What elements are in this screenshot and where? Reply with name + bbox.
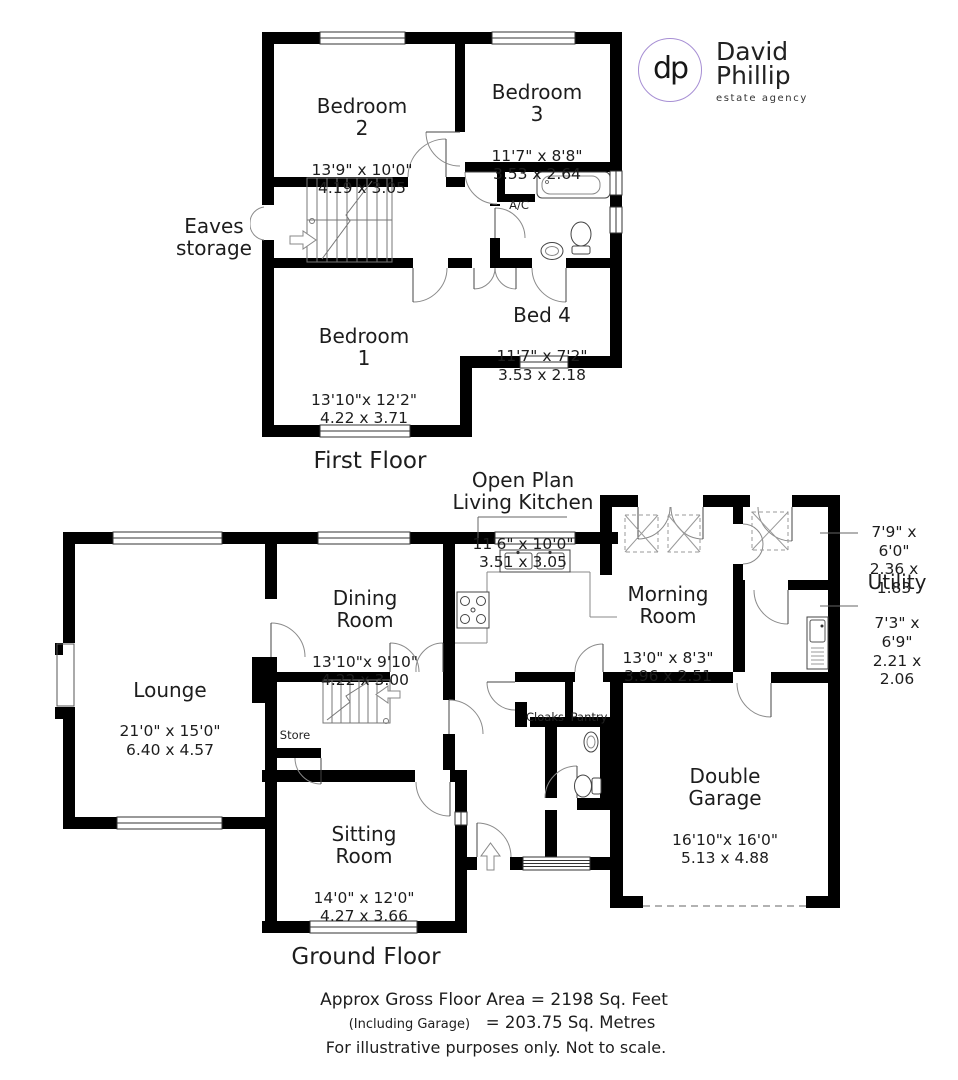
ground-floor-title: Ground Floor (291, 944, 440, 970)
room-cloaks: Cloaks (526, 692, 564, 743)
room-name: Bedroom 2 (312, 95, 413, 140)
room-dims: 11'7" x 8'8" 3.53 x 2.64 (491, 147, 582, 184)
room-dims: 13'10"x 12'2" 4.22 x 3.71 (311, 391, 417, 428)
logo-initials: dp (653, 51, 687, 89)
basin-icon (541, 243, 563, 260)
utility-sink-icon (807, 617, 828, 669)
first-floor-title: First Floor (314, 448, 427, 474)
room-name: Store (280, 729, 310, 742)
room-ac-cupboard: A/C (509, 180, 529, 231)
room-name: A/C (509, 199, 529, 212)
room-name: Open Plan Living Kitchen (453, 469, 594, 514)
room-name: Lounge (120, 679, 221, 701)
room-name: Dining Room (312, 587, 418, 632)
room-sitting: Sitting Room 14'0" x 12'0" 4.27 x 3.66 (314, 804, 415, 945)
room-name: Pantry (571, 711, 608, 724)
skylight-icons (625, 512, 788, 552)
room-pantry: Pantry (571, 692, 608, 743)
hob-icon (457, 592, 489, 628)
room-bed4: Bed 4 11'7" x 7'2" 3.53 x 2.18 (496, 285, 587, 404)
footer-area-feet: Approx Gross Floor Area = 2198 Sq. Feet (320, 990, 668, 1010)
room-bedroom2: Bedroom 2 13'9" x 10'0" 4.19 x 3.05 (312, 76, 413, 217)
room-dims: 11'6" x 10'0" 3.51 x 3.05 (453, 535, 594, 572)
room-open-plan-kitchen: Open Plan Living Kitchen 11'6" x 10'0" 3… (453, 450, 594, 591)
room-name: Eaves storage (176, 215, 252, 260)
room-eaves-storage: Eaves storage (176, 196, 252, 279)
room-dims: 7'3" x 6'9" 2.21 x 2.06 (867, 614, 928, 688)
room-name: Cloaks (526, 711, 564, 724)
logo-text: David Phillip estate agency (716, 38, 808, 104)
toilet-icon (571, 222, 591, 254)
room-bedroom1: Bedroom 1 13'10"x 12'2" 4.22 x 3.71 (311, 306, 417, 447)
floorplan-page: dp David Phillip estate agency (0, 0, 958, 1080)
room-dims: 13'0" x 8'3" 3.96 x 2.51 (622, 649, 713, 686)
room-name: Bedroom 1 (311, 325, 417, 370)
room-store: Store (280, 710, 310, 761)
room-name: Morning Room (622, 583, 713, 628)
room-garage: Double Garage 16'10"x 16'0" 5.13 x 4.88 (672, 746, 778, 887)
footer-including-garage: (Including Garage) (349, 1017, 470, 1032)
room-dims: 11'7" x 7'2" 3.53 x 2.18 (496, 347, 587, 384)
room-utility: Utility 7'3" x 6'9" 2.21 x 2.06 (867, 552, 928, 708)
footer-area-metres: (Including Garage) = 203.75 Sq. Metres (349, 1013, 656, 1032)
room-name: Double Garage (672, 765, 778, 810)
logo-name-line2: Phillip (716, 64, 808, 88)
logo-circle-icon: dp (638, 38, 702, 102)
room-lounge: Lounge 21'0" x 15'0" 6.40 x 4.57 (120, 660, 221, 779)
room-dims: 16'10"x 16'0" 5.13 x 4.88 (672, 831, 778, 868)
room-dining: Dining Room 13'10"x 9'10" 4.22 x 3.00 (312, 568, 418, 709)
room-dims: 14'0" x 12'0" 4.27 x 3.66 (314, 889, 415, 926)
room-name: Bed 4 (496, 304, 587, 326)
room-name: Bedroom 3 (491, 81, 582, 126)
room-dims: 13'10"x 9'10" 4.22 x 3.00 (312, 653, 418, 690)
footer-metres-value: = 203.75 Sq. Metres (486, 1013, 656, 1032)
stairs-up-arrow-icon (290, 231, 316, 249)
footer-disclaimer: For illustrative purposes only. Not to s… (326, 1038, 666, 1057)
room-bedroom3: Bedroom 3 11'7" x 8'8" 3.53 x 2.64 (491, 62, 582, 203)
room-name: Sitting Room (314, 823, 415, 868)
agency-logo: dp David Phillip estate agency (638, 38, 808, 104)
wc-toilet-icon (575, 775, 602, 797)
logo-tagline: estate agency (716, 93, 808, 104)
room-dims: 13'9" x 10'0" 4.19 x 3.05 (312, 161, 413, 198)
room-morning: Morning Room 13'0" x 8'3" 3.96 x 2.51 (622, 564, 713, 705)
room-name: Utility (867, 571, 928, 593)
room-dims: 21'0" x 15'0" 6.40 x 4.57 (120, 722, 221, 759)
